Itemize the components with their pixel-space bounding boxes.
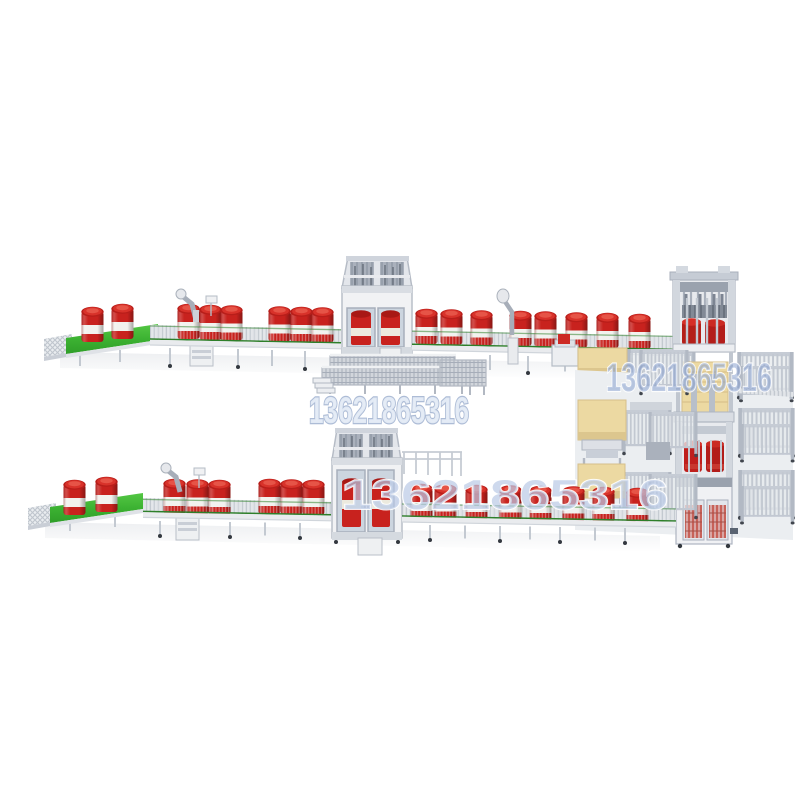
svg-text:13621865316: 13621865316 [606,356,772,400]
svg-text:13621865316: 13621865316 [309,390,469,431]
svg-text:13621865316: 13621865316 [342,471,668,518]
